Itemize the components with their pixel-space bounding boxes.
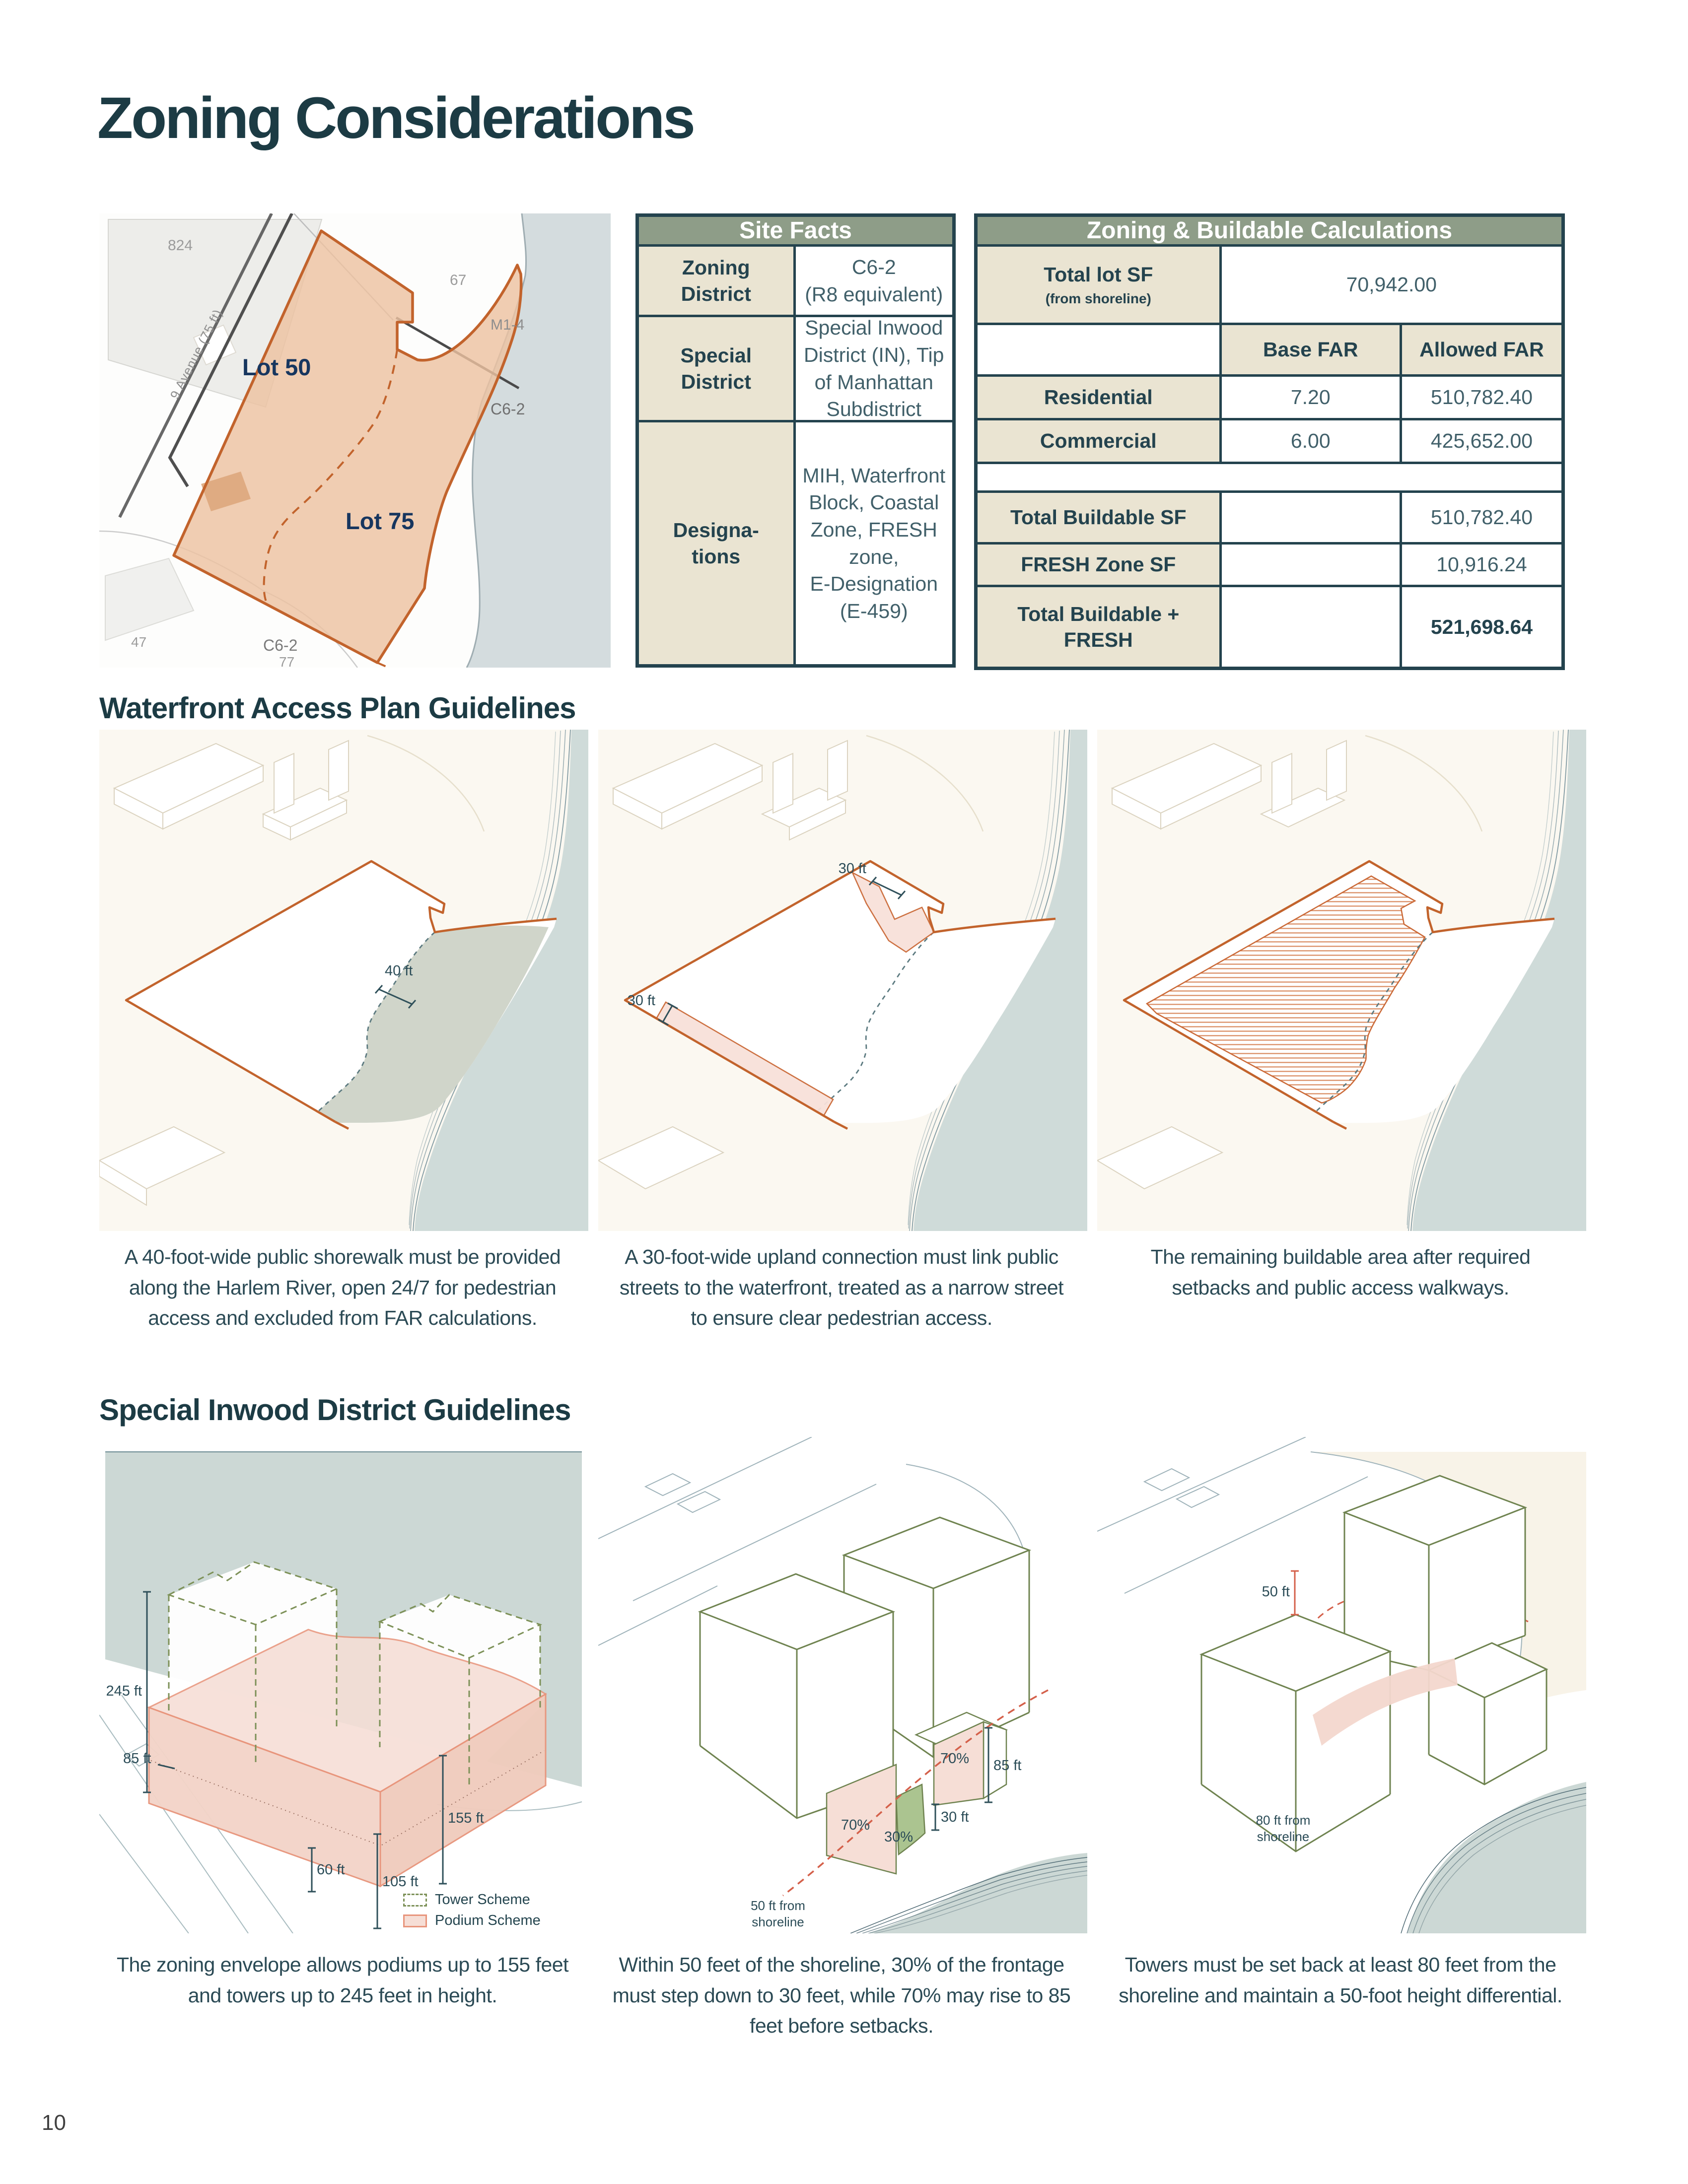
table-row: Total Buildable + FRESH 521,698.64 — [978, 587, 1561, 667]
dim-label-60ft: 60 ft — [317, 1862, 345, 1878]
calc-col-header-allowed: Allowed FAR — [1402, 325, 1561, 374]
calc-summary-label: Total Buildable + FRESH — [978, 587, 1222, 667]
table-row: Total lot SF (from shoreline) 70,942.00 — [978, 247, 1561, 325]
calc-table: Zoning & Buildable Calculations Total lo… — [974, 213, 1565, 670]
tower-scheme-swatch — [403, 1894, 427, 1907]
calc-total-lot-label: Total lot SF (from shoreline) — [978, 247, 1222, 323]
table-row: Total Buildable SF 510,782.40 — [978, 493, 1561, 545]
calc-summary-value-total: 521,698.64 — [1402, 587, 1561, 667]
label-30pct: 30% — [876, 1828, 921, 1846]
calc-summary-label: FRESH Zone SF — [978, 545, 1222, 585]
dim-label-85ft: 85 ft — [123, 1751, 151, 1767]
calc-blank-cell — [978, 325, 1222, 374]
table-row: Special District Special Inwood District… — [639, 317, 952, 422]
label-70pct-left: 70% — [831, 1816, 880, 1834]
diagram-envelope: 245 ft 85 ft 155 ft 60 ft 105 ft Tower S… — [99, 1437, 588, 1933]
diagram-stepdown: 70% 70% 30% 30 ft 85 ft 50 ft from shore… — [598, 1437, 1087, 1933]
calc-summary-blank — [1222, 545, 1402, 585]
dim-label-155ft: 155 ft — [448, 1810, 484, 1827]
site-facts-row-label: Designa- tions — [639, 422, 796, 664]
report-page: Zoning Considerations — [0, 0, 1688, 2184]
map-label-m1-4: M1-4 — [491, 317, 524, 334]
legend-tower-scheme: Tower Scheme — [403, 1892, 530, 1908]
caption-shorewalk: A 40-foot-wide public shorewalk must be … — [112, 1242, 573, 1334]
site-facts-row-value: MIH, Waterfront Block, Coastal Zone, FRE… — [796, 422, 953, 664]
site-facts-header: Site Facts — [639, 217, 952, 247]
table-row: FRESH Zone SF 10,916.24 — [978, 545, 1561, 587]
calc-total-lot-label-main: Total lot SF — [1044, 262, 1153, 287]
table-row: Residential 7.20 510,782.40 — [978, 377, 1561, 420]
dim-label-30ft-top: 30 ft — [817, 861, 866, 877]
caption-buildable: The remaining buildable area after requi… — [1110, 1242, 1571, 1303]
zoning-map: 824 67 M1-4 C6-2 Lot 50 Lot 75 C6-2 47 7… — [99, 213, 611, 668]
map-label-67: 67 — [450, 272, 466, 289]
label-70pct-right: 70% — [930, 1750, 980, 1768]
site-facts-row-value: C6-2 (R8 equivalent) — [796, 247, 953, 315]
map-label-lot75: Lot 75 — [346, 507, 414, 535]
site-facts-row-label: Special District — [639, 317, 796, 420]
diagram-shorewalk: 40 ft — [99, 730, 588, 1231]
calc-row-allowed: 425,652.00 — [1402, 420, 1561, 462]
calc-row-label: Residential — [978, 377, 1222, 418]
table-spacer-row — [978, 464, 1561, 493]
table-row: Base FAR Allowed FAR — [978, 325, 1561, 377]
site-facts-table: Site Facts Zoning District C6-2 (R8 equi… — [635, 213, 956, 668]
table-row: Commercial 6.00 425,652.00 — [978, 420, 1561, 464]
page-title: Zoning Considerations — [97, 84, 694, 152]
legend-tower-label: Tower Scheme — [435, 1892, 530, 1908]
page-number: 10 — [42, 2111, 66, 2135]
calc-row-allowed: 510,782.40 — [1402, 377, 1561, 418]
map-label-47: 47 — [131, 634, 146, 650]
legend-podium-label: Podium Scheme — [435, 1912, 541, 1929]
dim-label-85ft: 85 ft — [993, 1758, 1021, 1774]
calc-total-lot-label-sub: (from shoreline) — [1046, 290, 1151, 308]
rear-tower — [1344, 1476, 1525, 1670]
caption-setback: Towers must be set back at least 80 feet… — [1110, 1950, 1571, 2011]
dim-label-40ft: 40 ft — [385, 963, 413, 979]
map-label-c62-inland: C6-2 — [263, 636, 297, 655]
calc-summary-value: 10,916.24 — [1402, 545, 1561, 585]
map-label-c62-shore: C6-2 — [491, 400, 525, 418]
calc-total-lot-value: 70,942.00 — [1222, 247, 1561, 323]
note-80ft-shoreline: 80 ft from shoreline — [1232, 1812, 1334, 1844]
calc-col-header-base: Base FAR — [1222, 325, 1402, 374]
diagram-upland-connection: 30 ft 30 ft — [598, 730, 1087, 1231]
calc-summary-value: 510,782.40 — [1402, 493, 1561, 542]
waterfront-heading: Waterfront Access Plan Guidelines — [99, 691, 576, 725]
podium-scheme-swatch — [403, 1914, 427, 1927]
map-label-824: 824 — [168, 237, 193, 254]
calc-table-header: Zoning & Buildable Calculations — [978, 217, 1561, 247]
dim-label-245ft: 245 ft — [99, 1683, 142, 1700]
setback-drawing — [1097, 1437, 1586, 1933]
calc-row-base: 7.20 — [1222, 377, 1402, 418]
caption-stepdown: Within 50 feet of the shoreline, 30% of … — [611, 1950, 1072, 2042]
legend-podium-scheme: Podium Scheme — [403, 1912, 541, 1929]
site-facts-row-value: Special Inwood District (IN), Tip of Man… — [796, 317, 953, 420]
upland-drawing — [598, 730, 1087, 1231]
table-row: Designa- tions MIH, Waterfront Block, Co… — [639, 422, 952, 664]
calc-summary-blank — [1222, 493, 1402, 542]
note-50ft-shoreline: 50 ft from shoreline — [728, 1898, 828, 1930]
diagram-buildable-area — [1097, 730, 1586, 1231]
envelope-drawing — [99, 1437, 588, 1933]
inwood-heading: Special Inwood District Guidelines — [99, 1393, 571, 1427]
dim-label-105ft: 105 ft — [382, 1874, 419, 1890]
diagram-setback: 50 ft 80 ft from shoreline — [1097, 1437, 1586, 1933]
calc-summary-label: Total Buildable SF — [978, 493, 1222, 542]
spacer-cell — [978, 464, 1561, 490]
calc-row-base: 6.00 — [1222, 420, 1402, 462]
caption-envelope: The zoning envelope allows podiums up to… — [112, 1950, 573, 2011]
zoning-map-drawing — [99, 213, 611, 668]
dim-label-30ft-left: 30 ft — [603, 993, 655, 1009]
map-label-77: 77 — [279, 654, 294, 670]
calc-summary-blank — [1222, 587, 1402, 667]
map-label-lot50: Lot 50 — [242, 353, 311, 381]
caption-upland: A 30-foot-wide upland connection must li… — [611, 1242, 1072, 1334]
calc-row-label: Commercial — [978, 420, 1222, 462]
site-facts-row-label: Zoning District — [639, 247, 796, 315]
shorewalk-drawing — [99, 730, 588, 1231]
stepdown-drawing — [598, 1437, 1087, 1933]
buildable-drawing — [1097, 730, 1586, 1231]
table-row: Zoning District C6-2 (R8 equivalent) — [639, 247, 952, 317]
dim-label-30ft: 30 ft — [941, 1809, 969, 1826]
dim-label-50ft: 50 ft — [1246, 1584, 1290, 1600]
